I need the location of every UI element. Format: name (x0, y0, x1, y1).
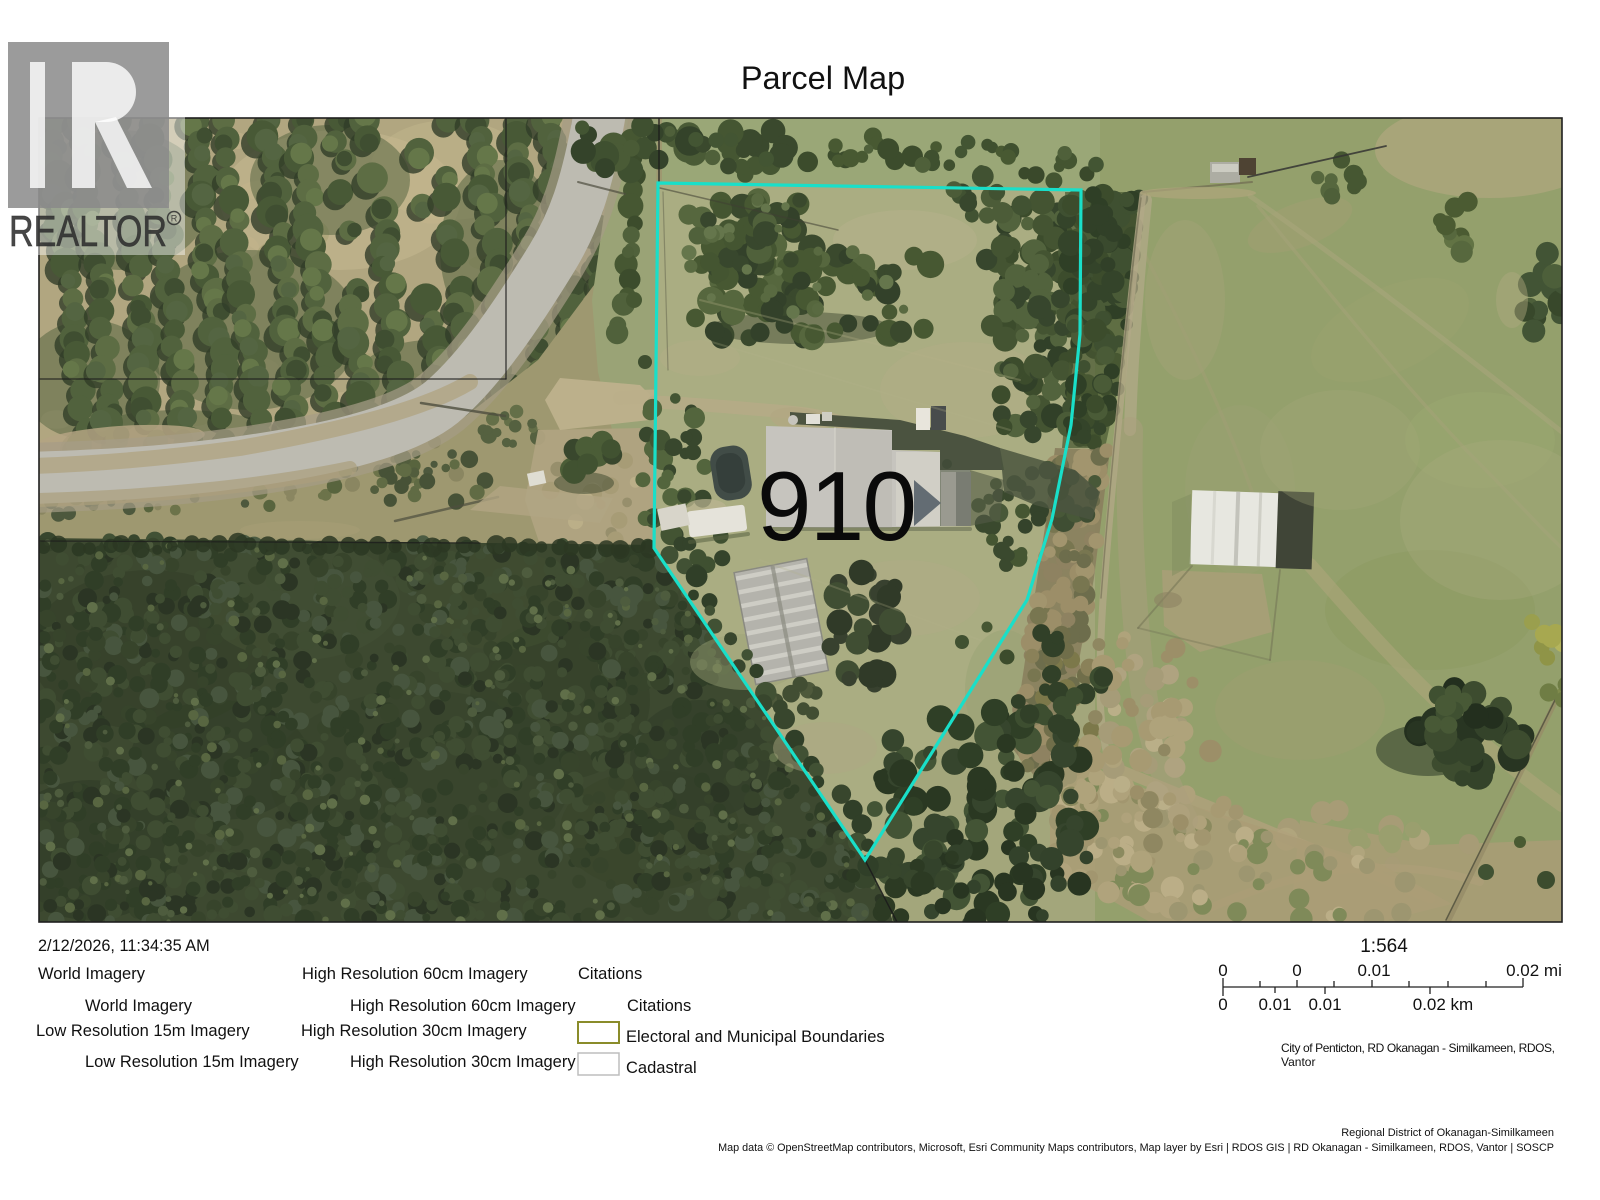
svg-text:Citations: Citations (627, 997, 691, 1015)
svg-text:REALTOR: REALTOR (9, 207, 167, 256)
svg-text:0: 0 (1218, 961, 1227, 980)
svg-text:Vantor: Vantor (1281, 1055, 1315, 1069)
svg-text:910: 910 (757, 451, 917, 561)
svg-text:World Imagery: World Imagery (38, 965, 146, 983)
svg-text:Citations: Citations (578, 965, 642, 983)
svg-text:City of Penticton, RD Okanagan: City of Penticton, RD Okanagan - Similka… (1281, 1041, 1555, 1055)
svg-text:Map data © OpenStreetMap contr: Map data © OpenStreetMap contributors, M… (718, 1142, 1554, 1154)
svg-text:High Resolution 60cm Imagery: High Resolution 60cm Imagery (302, 965, 528, 983)
svg-text:High Resolution 30cm Imagery: High Resolution 30cm Imagery (301, 1022, 527, 1040)
svg-text:Cadastral: Cadastral (626, 1059, 697, 1077)
svg-text:World Imagery: World Imagery (85, 997, 193, 1015)
svg-text:Low Resolution 15m Imagery: Low Resolution 15m Imagery (36, 1022, 250, 1040)
svg-text:R: R (171, 214, 178, 224)
svg-text:1:564: 1:564 (1360, 936, 1408, 957)
svg-text:0: 0 (1292, 961, 1301, 980)
svg-text:0.01: 0.01 (1308, 995, 1341, 1014)
svg-text:Regional District of Okanagan-: Regional District of Okanagan-Similkamee… (1341, 1127, 1554, 1139)
svg-text:High Resolution 30cm Imagery: High Resolution 30cm Imagery (350, 1053, 576, 1071)
svg-text:0: 0 (1218, 995, 1227, 1014)
svg-text:0.01: 0.01 (1258, 995, 1291, 1014)
svg-text:0.02 km: 0.02 km (1413, 995, 1473, 1014)
svg-text:Electoral and Municipal Bounda: Electoral and Municipal Boundaries (626, 1028, 885, 1046)
svg-text:Low Resolution 15m Imagery: Low Resolution 15m Imagery (85, 1053, 299, 1071)
svg-text:0.02 mi: 0.02 mi (1506, 961, 1562, 980)
svg-text:2/12/2026, 11:34:35 AM: 2/12/2026, 11:34:35 AM (38, 937, 210, 955)
svg-text:High Resolution 60cm Imagery: High Resolution 60cm Imagery (350, 997, 576, 1015)
svg-text:0.01: 0.01 (1357, 961, 1390, 980)
svg-text:Parcel Map: Parcel Map (741, 60, 905, 96)
